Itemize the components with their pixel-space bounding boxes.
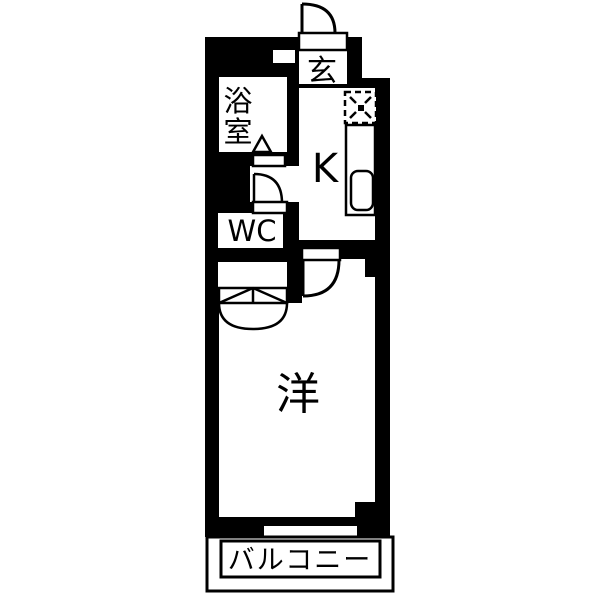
hallway-floor — [250, 166, 299, 202]
pillar-bottom-right — [355, 502, 378, 519]
balcony-window — [263, 525, 358, 537]
kitchen-room-door-frame — [302, 248, 340, 260]
floorplan: 玄 浴 室 K WC 洋 バルコニー — [0, 0, 600, 600]
entrance-label: 玄 — [307, 54, 337, 89]
entrance-door-swing-arc — [302, 4, 335, 33]
refrigerator-center-dot — [358, 105, 364, 111]
closet-floor — [218, 262, 287, 288]
kitchen-label: K — [312, 146, 340, 192]
bath-door-threshold — [253, 155, 285, 166]
floorplan-drawing: 玄 浴 室 K WC 洋 バルコニー — [0, 0, 600, 600]
refrigerator-space — [345, 92, 376, 123]
bath-label-char-1: 浴 — [223, 84, 252, 118]
kitchen-counter — [346, 125, 375, 215]
wc-door-frame — [253, 202, 287, 213]
entrance-door-frame — [299, 33, 347, 50]
pillar-top-right — [365, 258, 390, 277]
bath-label-char-2: 室 — [223, 115, 252, 149]
kitchen-sink — [351, 171, 373, 210]
western-room-label: 洋 — [276, 369, 320, 420]
wc-label: WC — [228, 214, 277, 248]
wall-niche — [273, 50, 295, 63]
entrance-door — [299, 4, 347, 50]
balcony-label: バルコニー — [228, 545, 372, 576]
